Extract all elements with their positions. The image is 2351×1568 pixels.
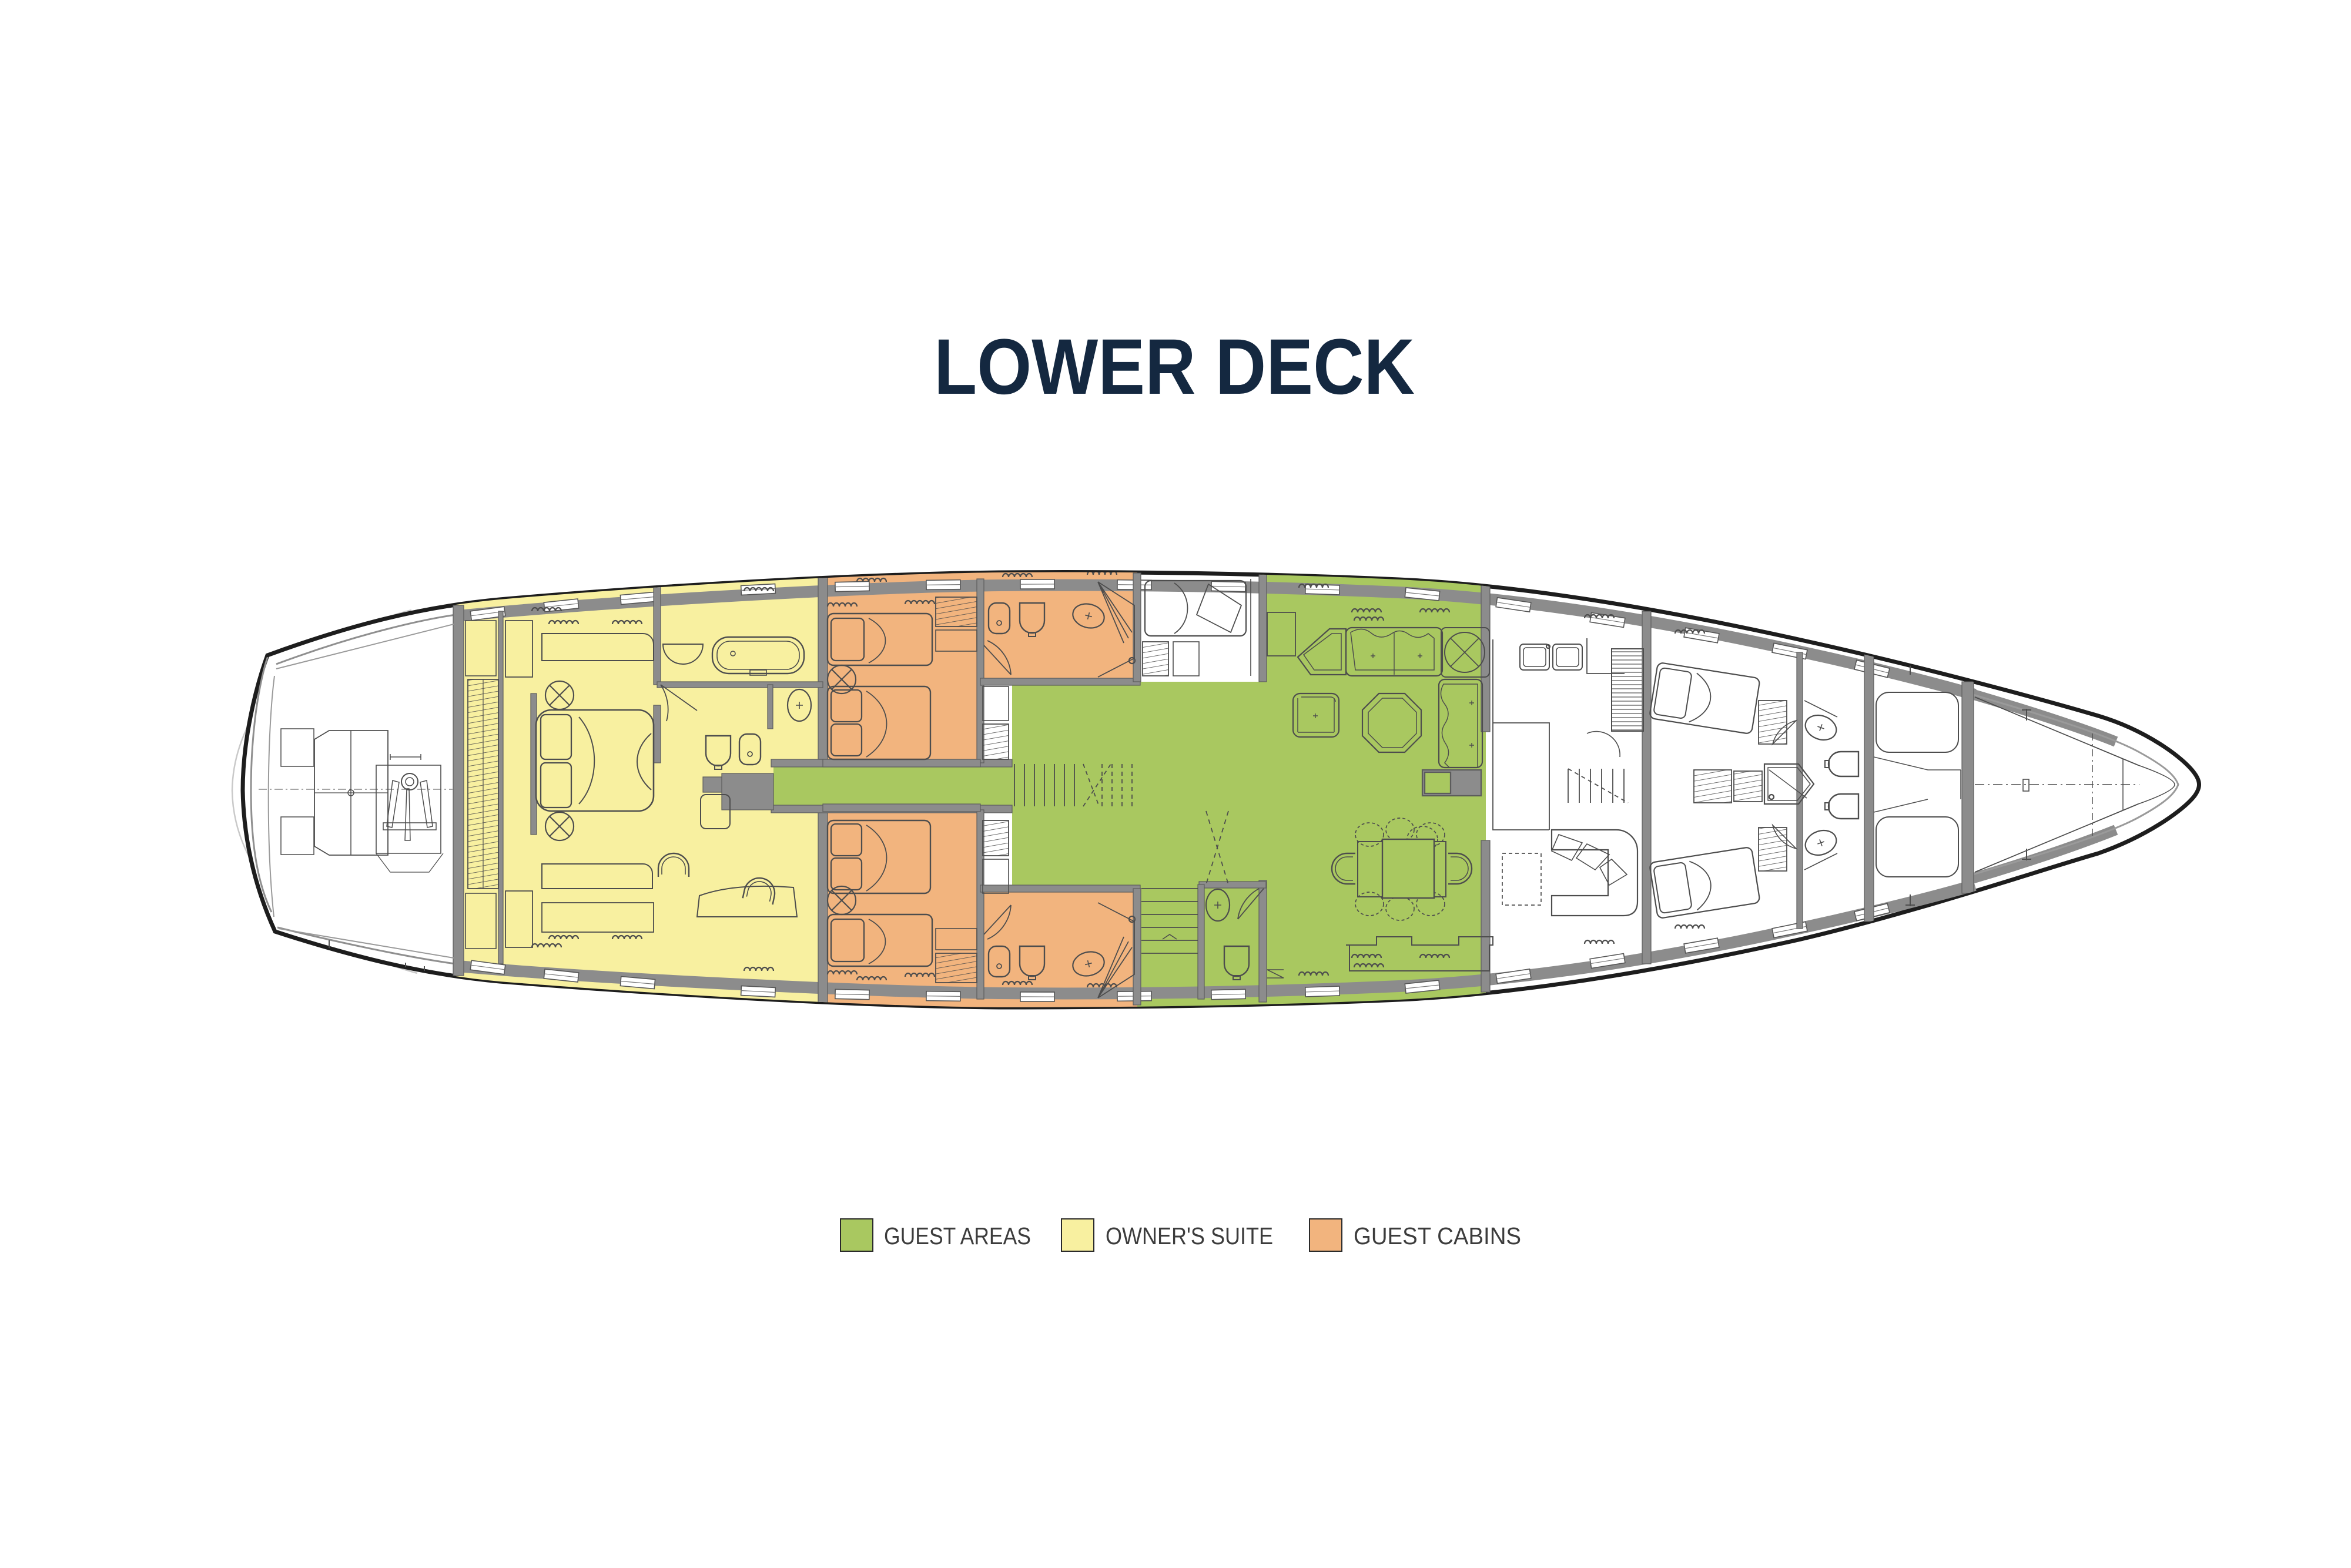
svg-text:GUEST CABINS: GUEST CABINS [1354, 1222, 1521, 1249]
svg-text:LOWER DECK: LOWER DECK [934, 323, 1415, 411]
svg-text:GUEST AREAS: GUEST AREAS [884, 1222, 1031, 1249]
svg-text:OWNER'S SUITE: OWNER'S SUITE [1106, 1222, 1273, 1249]
